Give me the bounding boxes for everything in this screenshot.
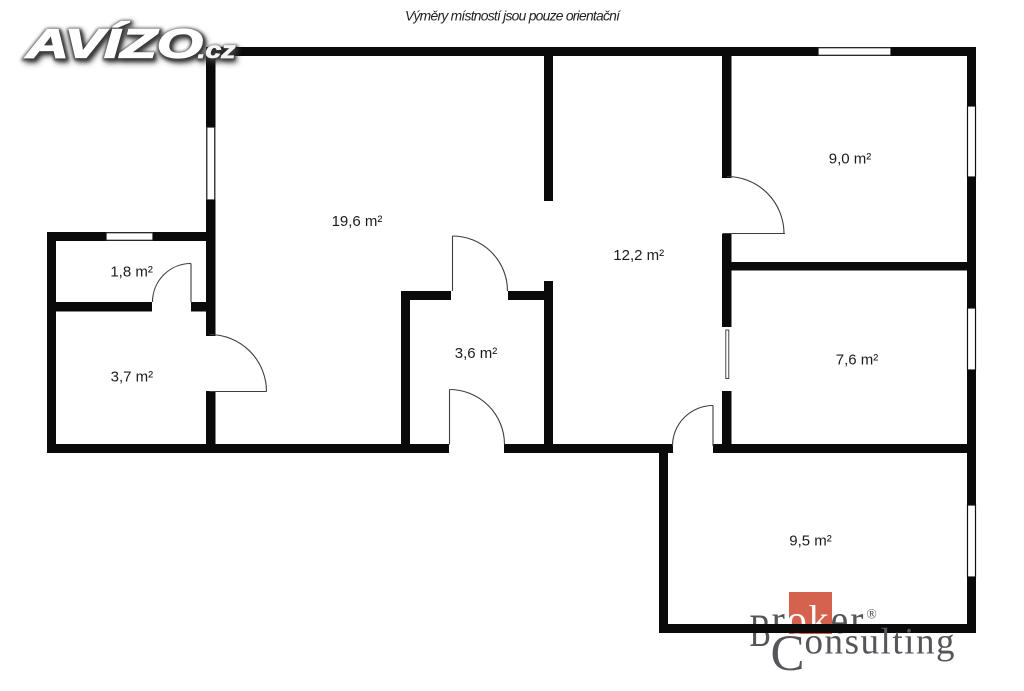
svg-text:.cz: .cz: [198, 37, 237, 63]
svg-text:7,6 m²: 7,6 m²: [836, 351, 879, 368]
svg-text:3,6 m²: 3,6 m²: [455, 345, 498, 362]
svg-text:AVÍZO: AVÍZO: [25, 21, 204, 67]
svg-text:9,5 m²: 9,5 m²: [789, 533, 832, 550]
svg-text:3,7 m²: 3,7 m²: [111, 369, 154, 386]
svg-text:19,6 m²: 19,6 m²: [332, 213, 383, 230]
svg-text:12,2 m²: 12,2 m²: [613, 247, 664, 264]
svg-text:C: C: [771, 626, 805, 682]
svg-text:®: ®: [867, 607, 877, 622]
svg-text:9,0 m²: 9,0 m²: [829, 150, 872, 167]
svg-text:Výměry místností jsou pouze or: Výměry místností jsou pouze orientační: [405, 8, 621, 24]
svg-text:1,8 m²: 1,8 m²: [110, 263, 153, 280]
